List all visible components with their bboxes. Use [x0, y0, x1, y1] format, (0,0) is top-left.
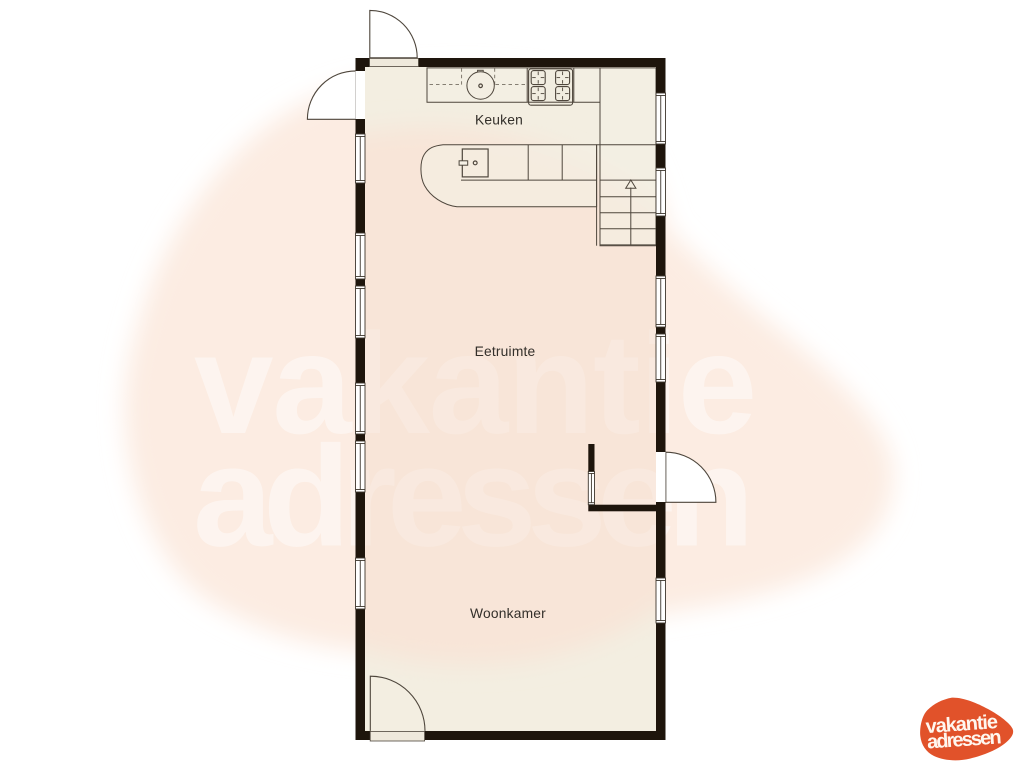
svg-text:Keuken: Keuken: [475, 112, 523, 127]
svg-text:Eetruimte: Eetruimte: [475, 344, 536, 359]
svg-text:Woonkamer: Woonkamer: [470, 606, 546, 621]
